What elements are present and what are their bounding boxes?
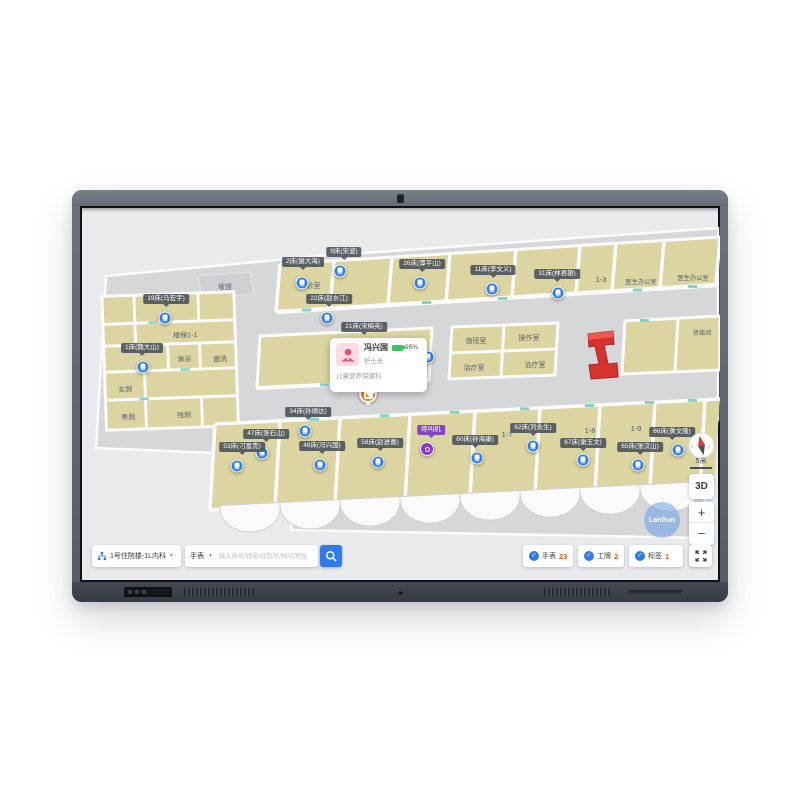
bed-marker[interactable] xyxy=(414,277,427,290)
bed-marker-icon xyxy=(325,315,330,322)
call-tag[interactable]: 呼叫机 xyxy=(417,425,445,435)
bed-marker[interactable] xyxy=(672,444,685,457)
fullscreen-button[interactable] xyxy=(689,545,712,567)
bed-tag[interactable]: 19床(马宏宇) xyxy=(143,294,189,304)
3d-toggle-button[interactable]: 3D xyxy=(689,474,714,499)
bed-marker[interactable] xyxy=(231,460,244,473)
bed-marker-icon xyxy=(318,462,323,469)
bed-marker-icon xyxy=(418,280,423,287)
stylus-slot xyxy=(627,590,684,595)
bezel-top xyxy=(72,190,728,206)
bed-marker[interactable] xyxy=(632,459,645,472)
bed-marker[interactable] xyxy=(577,454,590,467)
bed-marker-icon xyxy=(581,457,586,464)
zoom-controls: + − xyxy=(689,502,714,545)
watch-count-chip[interactable]: ✓ 手表 23 xyxy=(523,545,573,567)
tag-count: 1 xyxy=(665,552,669,561)
bed-marker-icon xyxy=(376,459,381,466)
marker-layer: 19床(马宏宇)1床(魏大山)2床(谢大海)9床(宋波)22床(赵水江)26床(… xyxy=(80,206,720,582)
bezel-bottom xyxy=(72,582,728,602)
bed-tag[interactable]: 11床(李文义) xyxy=(470,265,515,275)
person-popup[interactable]: 冯兴国 95% 护士长 儿童营养保健科 xyxy=(330,338,427,392)
watch-count: 23 xyxy=(559,552,567,561)
bed-tag[interactable]: 26床(谭平山) xyxy=(399,259,445,269)
person-department: 儿童营养保健科 xyxy=(336,370,421,380)
bed-tag[interactable]: 53床(刁富贵) xyxy=(219,442,265,452)
device-filter-dropdown[interactable]: 手表 xyxy=(190,551,204,561)
bed-marker-icon xyxy=(141,364,146,371)
bed-marker[interactable] xyxy=(314,459,327,472)
badge-count: 2 xyxy=(614,552,618,561)
area-selector-label: 1号住院楼-1L内科 xyxy=(110,551,166,561)
bed-marker[interactable] xyxy=(159,312,172,325)
bed-tag[interactable]: 22床(赵水江) xyxy=(306,294,352,304)
bed-marker-icon xyxy=(490,286,495,293)
compass[interactable]: ‹ › xyxy=(688,432,715,459)
bed-marker[interactable] xyxy=(527,440,540,453)
bed-tag[interactable]: 2床(谢大海) xyxy=(282,257,324,267)
bed-marker-icon xyxy=(556,290,561,297)
battery-icon xyxy=(392,345,403,351)
bed-marker-icon xyxy=(338,268,343,275)
chevron-down-icon: ▼ xyxy=(169,553,174,559)
zoom-in-button[interactable]: + xyxy=(689,502,714,523)
bed-marker[interactable] xyxy=(321,312,334,325)
bed-tag[interactable]: 48床(冯兴国) xyxy=(299,441,345,451)
bed-tag[interactable]: 62床(刘永生) xyxy=(510,423,556,433)
bed-marker[interactable] xyxy=(137,361,150,374)
bed-marker-icon xyxy=(303,428,308,435)
bed-marker-icon xyxy=(300,280,305,287)
person-name: 冯兴国 xyxy=(364,343,388,352)
speaker-grille xyxy=(544,588,610,596)
bed-marker[interactable] xyxy=(552,287,565,300)
bed-marker-icon xyxy=(636,462,641,469)
bed-marker-icon xyxy=(163,315,168,322)
person-role: 护士长 xyxy=(364,355,418,365)
bed-tag[interactable]: 60床(孙海康) xyxy=(452,435,498,445)
battery-percent: 95% xyxy=(405,344,418,351)
area-selector-dropdown[interactable]: 1号住院楼-1L内科 ▼ xyxy=(92,545,181,567)
search-box: 手表 ▼ xyxy=(185,545,318,567)
chevron-down-icon[interactable]: ▼ xyxy=(208,553,213,559)
lanbon-watermark: LanBon xyxy=(644,502,680,538)
call-marker[interactable] xyxy=(420,442,434,456)
bed-marker[interactable] xyxy=(471,452,484,465)
search-button[interactable] xyxy=(320,545,342,567)
display-device: 坡道 门厅 楼梯1-1 淋浴 盥洗 女厕 男厕 残厕 xyxy=(72,190,728,602)
fullscreen-icon xyxy=(694,549,708,563)
call-marker-icon xyxy=(425,447,430,452)
bed-tag[interactable]: 58床(赵进喜) xyxy=(357,438,403,448)
check-icon: ✓ xyxy=(584,551,594,561)
bed-tag[interactable]: 31床(林君雄) xyxy=(534,269,580,279)
bed-marker-icon xyxy=(531,443,536,450)
map-scale: 5米 xyxy=(685,456,717,469)
zoom-out-button[interactable]: − xyxy=(689,523,714,544)
bed-tag[interactable]: 21床(宋梅英) xyxy=(341,322,387,332)
bed-marker[interactable] xyxy=(486,283,499,296)
check-icon: ✓ xyxy=(529,551,539,561)
front-camera xyxy=(397,194,404,203)
bed-tag[interactable]: 65床(张汉山) xyxy=(617,442,663,452)
bed-marker[interactable] xyxy=(299,425,312,438)
bed-marker[interactable] xyxy=(296,277,309,290)
bed-tag[interactable]: 9床(宋波) xyxy=(326,247,361,257)
bed-marker[interactable] xyxy=(372,456,385,469)
check-icon: ✓ xyxy=(635,551,645,561)
bed-marker-icon xyxy=(235,463,240,470)
ir-sensor xyxy=(398,590,403,595)
bed-marker-icon xyxy=(676,447,681,454)
bed-tag[interactable]: 1床(魏大山) xyxy=(121,343,163,353)
bed-marker-icon xyxy=(475,455,480,462)
speaker-grille xyxy=(184,588,254,596)
screen: 坡道 门厅 楼梯1-1 淋浴 盥洗 女厕 男厕 残厕 xyxy=(80,206,720,582)
badge-count-chip[interactable]: ✓ 工牌 2 xyxy=(578,545,624,567)
front-control-panel[interactable] xyxy=(124,587,172,597)
tag-count-chip[interactable]: ✓ 标签 1 xyxy=(629,545,683,567)
bed-tag[interactable]: 67床(谢玉文) xyxy=(560,438,606,448)
bed-tag[interactable]: 47床(张石山) xyxy=(243,429,289,439)
bed-marker[interactable] xyxy=(334,265,347,278)
search-icon xyxy=(324,549,338,563)
bed-tag[interactable]: 34床(孙顺达) xyxy=(285,407,331,417)
nurse-avatar-icon xyxy=(336,343,359,366)
building-icon xyxy=(97,551,107,561)
search-input[interactable] xyxy=(217,552,309,561)
